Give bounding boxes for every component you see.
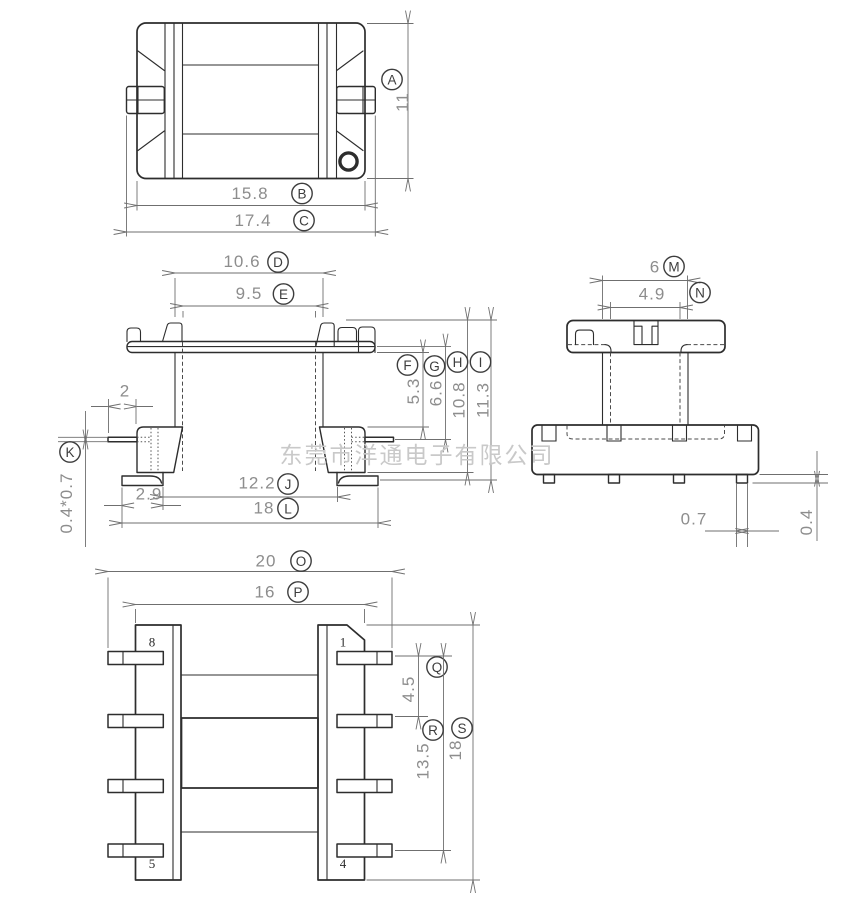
dim-f-letter: F: [403, 358, 411, 373]
dim-b-value: 15.8: [231, 184, 268, 203]
dim-pin-protrusion-value: 2: [120, 382, 130, 401]
dim-a-letter: A: [387, 73, 396, 88]
dim-k-value: 0.4*0.7: [57, 473, 76, 534]
dim-q-value: 4.5: [399, 676, 418, 703]
pin-number-5: 5: [149, 856, 156, 871]
dim-s-value: 18: [446, 740, 465, 761]
dim-s-letter: S: [457, 721, 466, 736]
bottom-view: 8 1 5 4: [108, 625, 392, 880]
dim-d-value: 10.6: [223, 252, 260, 271]
pin-number-4: 4: [340, 856, 347, 871]
drawing-sheet: 8 1 5 4 11 A 15.8 B 17.4 C 10.6 D 9.5: [0, 0, 845, 904]
dim-n-letter: N: [695, 286, 705, 301]
dim-l-value: 18: [254, 499, 275, 518]
dim-a-value: 11: [393, 92, 412, 112]
side-view-foot-4: [737, 475, 748, 484]
dim-i-value: 11.3: [474, 382, 493, 418]
pin-number-1: 1: [340, 635, 347, 650]
dim-c-value: 17.4: [234, 211, 271, 230]
top-view: [127, 23, 376, 179]
dim-m-value: 6: [650, 258, 660, 277]
dim-p-value: 16: [255, 583, 276, 602]
front-view-right-foot: [337, 473, 378, 486]
dim-k-letter: K: [65, 445, 74, 460]
bottom-view-core: [182, 718, 319, 788]
dim-r-value: 13.5: [414, 742, 433, 779]
dim-e-letter: E: [279, 287, 288, 302]
side-view-top-flange: [567, 321, 725, 353]
dim-o-value: 20: [256, 552, 277, 571]
top-view-hole: [340, 153, 357, 170]
dim-j-letter: J: [285, 477, 292, 492]
side-view-foot-1: [544, 475, 555, 484]
dim-j-value: 12.2: [238, 474, 275, 493]
dim-foot-width-value: 2.9: [136, 485, 163, 504]
top-view-body-outline: [137, 23, 365, 179]
dim-o-letter: O: [296, 554, 307, 569]
dim-h-value: 10.8: [450, 381, 469, 418]
dim-h-letter: H: [453, 355, 463, 370]
front-view-left-pin: [108, 437, 137, 441]
dim-n-value: 4.9: [639, 285, 666, 304]
dim-c-letter: C: [299, 214, 309, 229]
engineering-drawing: 8 1 5 4 11 A 15.8 B 17.4 C 10.6 D 9.5: [0, 0, 845, 904]
dim-r-letter: R: [428, 723, 438, 738]
dim-l-letter: L: [284, 502, 292, 517]
dim-d-letter: D: [273, 255, 283, 270]
front-view-left-base-block: [137, 427, 183, 473]
dim-f-value: 5.3: [404, 378, 423, 405]
dim-g-letter: G: [429, 359, 440, 374]
dim-q-letter: Q: [432, 660, 443, 675]
dim-g-value: 6.6: [427, 380, 446, 407]
side-view: [532, 321, 759, 484]
pin-number-8: 8: [149, 635, 156, 650]
watermark-company-name: 东莞市洋通电子有限公司: [280, 442, 555, 468]
dim-standoff-value: 0.4: [797, 509, 816, 536]
dim-pin-width-value: 0.7: [681, 510, 708, 529]
dim-p-letter: P: [293, 585, 302, 600]
side-view-foot-3: [674, 475, 685, 484]
side-view-foot-2: [609, 475, 620, 484]
dim-b-letter: B: [297, 187, 306, 202]
dim-e-value: 9.5: [236, 284, 263, 303]
dim-m-letter: M: [668, 260, 679, 275]
dim-i-letter: I: [479, 355, 483, 370]
